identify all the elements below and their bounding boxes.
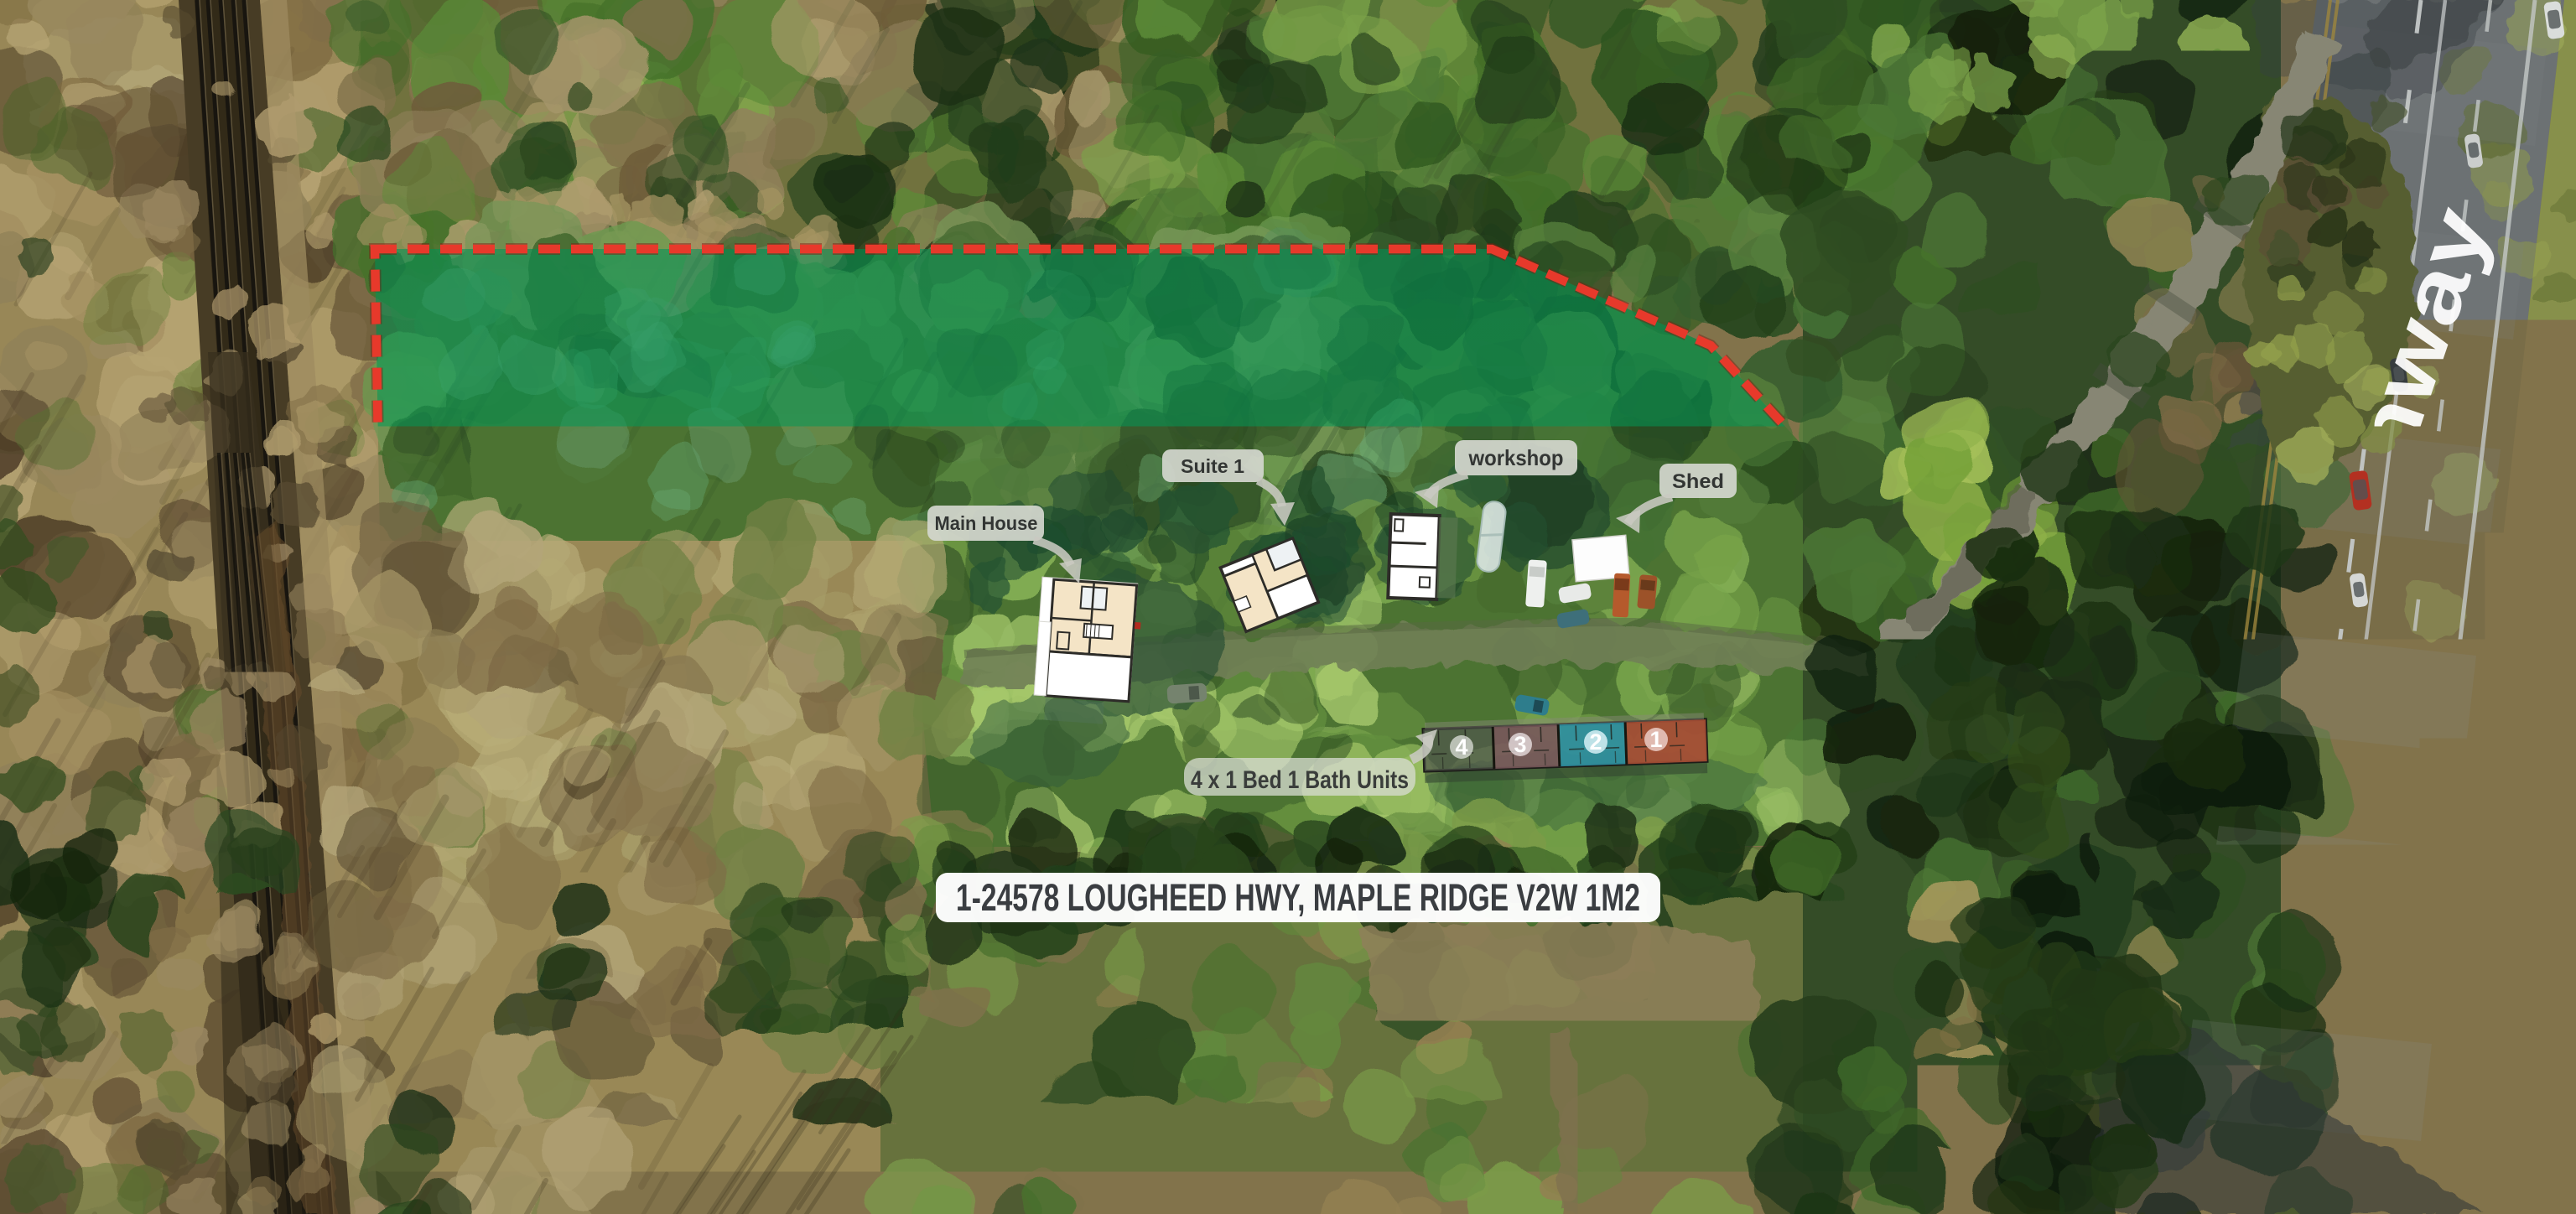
svg-text:Shed: Shed — [1672, 470, 1724, 493]
svg-text:Suite 1: Suite 1 — [1181, 455, 1244, 477]
svg-text:1-24578 LOUGHEED HWY, MAPLE RI: 1-24578 LOUGHEED HWY, MAPLE RIDGE V2W 1M… — [956, 876, 1640, 919]
svg-text:1: 1 — [1649, 727, 1662, 752]
svg-text:4 x 1 Bed 1 Bath Units: 4 x 1 Bed 1 Bath Units — [1191, 766, 1409, 794]
svg-text:Main House: Main House — [935, 512, 1038, 534]
svg-text:4: 4 — [1455, 734, 1467, 760]
svg-text:2: 2 — [1589, 729, 1602, 755]
svg-text:3: 3 — [1514, 732, 1526, 757]
svg-text:workshop: workshop — [1468, 445, 1564, 470]
